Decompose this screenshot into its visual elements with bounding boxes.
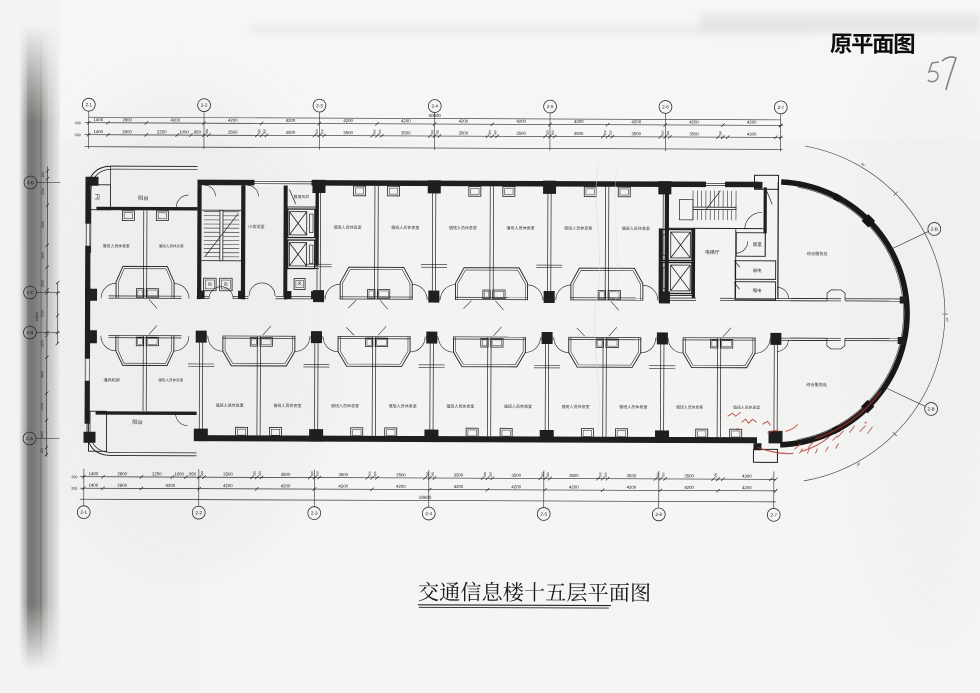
svg-text:2-5: 2-5 [547, 104, 554, 109]
svg-text:350: 350 [205, 129, 209, 134]
svg-text:2-B: 2-B [26, 330, 33, 335]
svg-text:3500: 3500 [574, 131, 584, 136]
svg-text:350: 350 [368, 471, 372, 476]
svg-text:2250: 2250 [152, 471, 162, 476]
svg-text:4200: 4200 [627, 485, 637, 490]
svg-text:200: 200 [71, 475, 77, 479]
svg-text:4300: 4300 [747, 132, 757, 137]
svg-text:2-6: 2-6 [662, 105, 669, 110]
svg-text:2800: 2800 [122, 129, 132, 134]
svg-text:2-5: 2-5 [540, 512, 547, 517]
svg-text:350: 350 [483, 472, 487, 477]
svg-text:350: 350 [488, 472, 492, 477]
svg-text:2700: 2700 [41, 188, 45, 195]
svg-text:1400: 1400 [89, 471, 99, 476]
svg-text:350: 350 [252, 471, 256, 476]
svg-text:3500: 3500 [569, 473, 579, 478]
svg-text:4200: 4200 [281, 483, 291, 488]
svg-text:3500: 3500 [228, 130, 238, 135]
svg-text:2-A: 2-A [26, 436, 34, 441]
svg-text:4200: 4200 [454, 484, 464, 489]
svg-text:350: 350 [263, 129, 267, 134]
svg-text:350: 350 [373, 129, 377, 134]
svg-text:950: 950 [194, 130, 202, 135]
svg-text:350: 350 [436, 129, 440, 134]
svg-text:4000: 4000 [41, 221, 45, 228]
svg-text:2-1: 2-1 [80, 510, 87, 515]
svg-text:2200: 2200 [40, 340, 44, 347]
svg-text:3500: 3500 [684, 473, 694, 478]
svg-text:1000: 1000 [174, 471, 184, 476]
svg-text:2-B: 2-B [928, 407, 935, 412]
svg-text:350: 350 [661, 472, 665, 477]
svg-text:350: 350 [541, 472, 545, 477]
svg-text:3500: 3500 [454, 473, 464, 478]
svg-text:350: 350 [320, 129, 324, 134]
svg-text:4200: 4200 [401, 118, 411, 123]
svg-text:350: 350 [310, 471, 314, 476]
svg-text:4200: 4200 [569, 484, 579, 489]
svg-text:4200: 4200 [516, 119, 526, 124]
svg-text:4200: 4200 [632, 119, 642, 124]
svg-text:4200: 4200 [684, 485, 694, 490]
svg-text:4200: 4200 [747, 120, 757, 125]
svg-text:2-2: 2-2 [201, 103, 208, 108]
svg-text:2-3: 2-3 [316, 103, 323, 108]
svg-text:350: 350 [604, 472, 608, 477]
svg-text:350: 350 [425, 471, 429, 476]
svg-text:3500: 3500 [223, 472, 233, 477]
svg-text:350: 350 [200, 471, 204, 476]
svg-text:4200: 4200 [286, 118, 296, 123]
svg-text:2-4: 2-4 [431, 104, 438, 109]
svg-text:4200: 4200 [742, 485, 752, 490]
svg-text:350: 350 [315, 129, 319, 134]
svg-text:2-7: 2-7 [770, 512, 777, 517]
svg-text:350: 350 [661, 130, 665, 135]
svg-text:200: 200 [41, 172, 45, 178]
svg-text:3500: 3500 [286, 130, 296, 135]
svg-text:3500: 3500 [401, 130, 411, 135]
svg-text:350: 350 [656, 472, 660, 477]
svg-text:3500: 3500 [631, 131, 641, 136]
svg-text:350: 350 [488, 130, 492, 135]
svg-text:3600: 3600 [40, 371, 44, 378]
svg-text:4200: 4200 [689, 119, 699, 124]
svg-text:3500: 3500 [338, 472, 348, 477]
svg-text:19200: 19200 [35, 312, 39, 322]
svg-text:50600: 50600 [429, 113, 442, 118]
svg-text:45°: 45° [945, 318, 949, 324]
svg-text:2-1: 2-1 [85, 102, 92, 107]
svg-text:350: 350 [378, 129, 382, 134]
svg-text:350: 350 [714, 472, 718, 477]
svg-text:2-6: 2-6 [655, 512, 662, 517]
svg-text:4200: 4200 [343, 118, 353, 123]
svg-text:4300: 4300 [742, 474, 752, 479]
svg-text:2800: 2800 [117, 471, 127, 476]
svg-text:2-C: 2-C [26, 290, 34, 295]
svg-text:4200: 4200 [511, 484, 521, 489]
svg-text:2-2: 2-2 [195, 510, 202, 515]
svg-text:4200: 4200 [170, 117, 180, 122]
svg-text:200: 200 [75, 121, 81, 125]
svg-text:2-D: 2-D [27, 180, 35, 185]
svg-text:2500: 2500 [41, 280, 45, 287]
svg-text:200: 200 [40, 448, 44, 454]
svg-text:200: 200 [75, 133, 81, 137]
svg-text:2700: 2700 [40, 403, 44, 410]
svg-text:2800: 2800 [122, 117, 132, 122]
svg-text:350: 350 [431, 471, 435, 476]
svg-text:2-B: 2-B [931, 227, 938, 232]
svg-text:4200: 4200 [459, 119, 469, 124]
svg-text:2800: 2800 [117, 483, 127, 488]
svg-text:3500: 3500 [689, 131, 699, 136]
svg-text:4200: 4200 [396, 484, 406, 489]
svg-text:350: 350 [315, 471, 319, 476]
svg-text:350: 350 [430, 129, 434, 134]
svg-text:1400: 1400 [94, 117, 104, 122]
svg-text:350: 350 [546, 472, 550, 477]
svg-text:3500: 3500 [511, 473, 521, 478]
svg-text:50600: 50600 [419, 495, 432, 500]
svg-text:2-3: 2-3 [311, 511, 318, 516]
svg-text:3500: 3500 [396, 472, 406, 477]
svg-text:350: 350 [493, 130, 497, 135]
svg-text:1400: 1400 [89, 483, 99, 488]
svg-text:3500: 3500 [459, 131, 469, 136]
svg-text:2-4: 2-4 [425, 511, 432, 516]
svg-text:350: 350 [373, 471, 377, 476]
svg-text:2250: 2250 [157, 129, 167, 134]
svg-text:4200: 4200 [223, 483, 233, 488]
svg-text:350: 350 [257, 129, 261, 134]
svg-text:350: 350 [258, 471, 262, 476]
svg-text:2200: 2200 [41, 252, 45, 259]
svg-text:200: 200 [71, 487, 77, 491]
svg-text:4300: 4300 [166, 483, 176, 488]
svg-text:2-7: 2-7 [777, 105, 784, 110]
svg-text:3500: 3500 [343, 130, 353, 135]
svg-text:1400: 1400 [93, 129, 103, 134]
svg-text:1000: 1000 [179, 129, 189, 134]
svg-text:2750: 2750 [40, 310, 44, 317]
svg-text:350: 350 [546, 130, 550, 135]
svg-text:350: 350 [666, 130, 670, 135]
svg-text:3500: 3500 [516, 131, 526, 136]
svg-text:4200: 4200 [228, 118, 238, 123]
svg-text:950: 950 [189, 472, 197, 477]
svg-text:350: 350 [551, 130, 555, 135]
svg-text:3500: 3500 [627, 473, 637, 478]
svg-text:350: 350 [598, 472, 602, 477]
svg-text:4200: 4200 [338, 484, 348, 489]
svg-text:350: 350 [718, 131, 722, 136]
svg-text:2100: 2100 [40, 431, 44, 438]
svg-text:4200: 4200 [574, 119, 584, 124]
svg-text:350: 350 [609, 130, 613, 135]
svg-text:350: 350 [603, 130, 607, 135]
svg-text:3500: 3500 [281, 472, 291, 477]
